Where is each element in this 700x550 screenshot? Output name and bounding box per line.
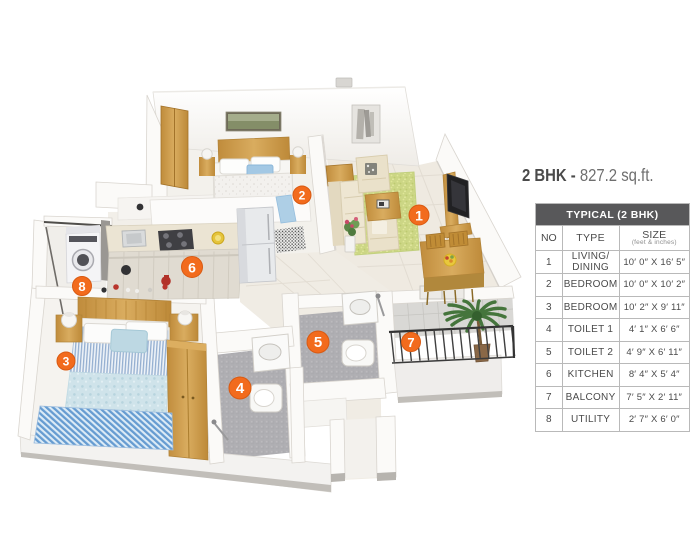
svg-text:4: 4 [236, 380, 245, 397]
svg-text:8: 8 [78, 279, 85, 294]
svg-text:5: 5 [314, 334, 322, 351]
svg-text:7: 7 [407, 335, 414, 350]
svg-text:1: 1 [415, 208, 423, 224]
svg-text:3: 3 [63, 355, 70, 369]
svg-text:2: 2 [299, 189, 306, 203]
svg-text:6: 6 [188, 260, 196, 276]
